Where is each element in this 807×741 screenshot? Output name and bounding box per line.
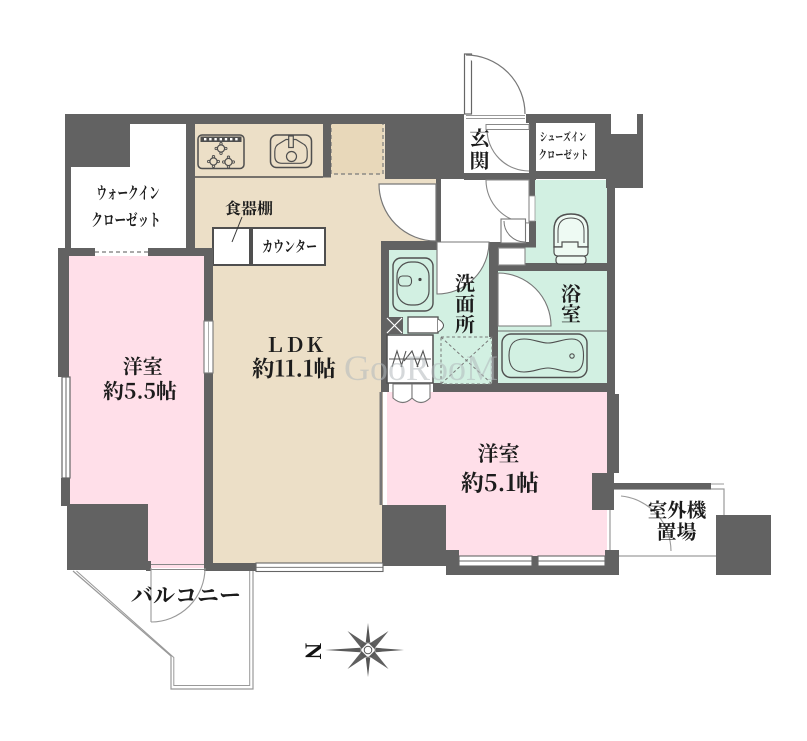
svg-text:N: N <box>301 643 326 660</box>
svg-text:GooRooM: GooRooM <box>344 348 498 388</box>
